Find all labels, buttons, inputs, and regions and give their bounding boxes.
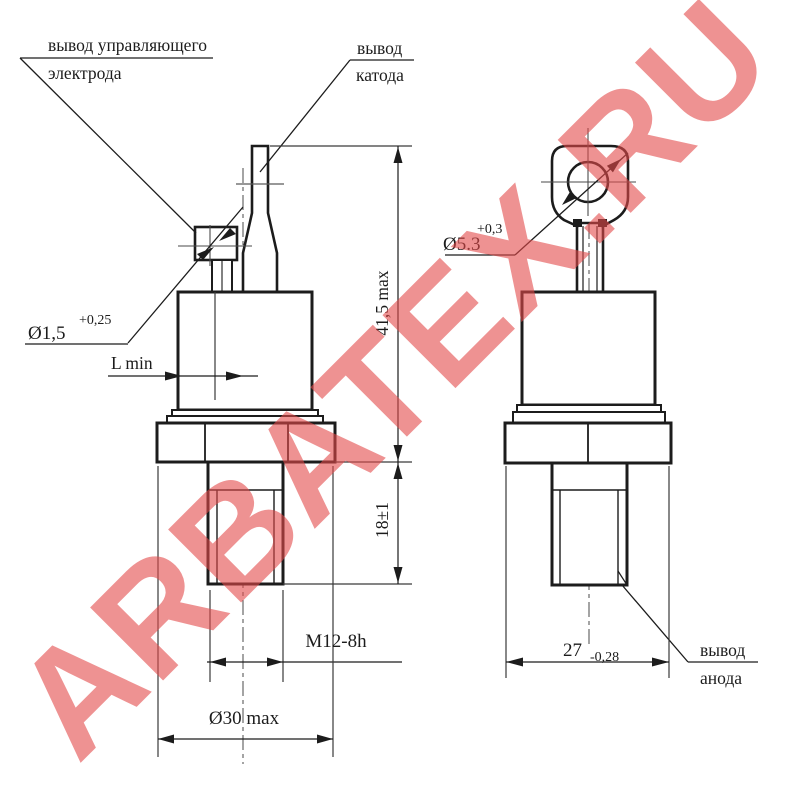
right-collar (517, 405, 661, 412)
stud-length-dim: 18±1 (372, 502, 392, 538)
lug-hole-dia-value: Ø5.3 (443, 234, 480, 255)
left-stud (208, 462, 283, 584)
cathode-lead-label-line1: вывод (357, 38, 402, 58)
anode-lead-label-line2: анода (700, 668, 742, 688)
body-dia-dim: Ø30 max (209, 708, 280, 729)
cathode-pin (243, 146, 277, 292)
flange-width-tolerance: -0,28 (590, 650, 619, 665)
gate-label-leader (20, 58, 196, 233)
cathode-lead-label-line2: катода (356, 65, 404, 85)
right-view (445, 128, 758, 678)
left-view (20, 58, 414, 764)
lug-hole-dia-tolerance: +0,3 (477, 222, 502, 237)
gate-wire-dia-value: Ø1,5 (28, 323, 65, 344)
technical-drawing: вывод управляющего электрода вывод катод… (0, 0, 787, 787)
gate-length-dim: L min (111, 353, 153, 373)
thyristor-outline-drawing: вывод управляющего электрода вывод катод… (0, 0, 787, 787)
left-hex-flange (157, 423, 335, 462)
right-body (522, 292, 655, 405)
left-body (178, 292, 312, 410)
overall-height-dim: 41,5 max (372, 270, 392, 335)
cathode-strap (577, 226, 603, 292)
right-stud (552, 463, 627, 585)
cathode-label-leader (260, 60, 350, 172)
gate-lead-label-line2: электрода (48, 63, 122, 83)
flange-width-value: 27 (563, 640, 582, 661)
gate-lead-label-line1: вывод управляющего (48, 35, 207, 55)
gate-wire-dia-tolerance: +0,25 (79, 313, 111, 328)
anode-label-leader (622, 585, 688, 662)
anode-lead-label-line1: вывод (700, 640, 745, 660)
thread-dim: M12-8h (305, 631, 367, 652)
